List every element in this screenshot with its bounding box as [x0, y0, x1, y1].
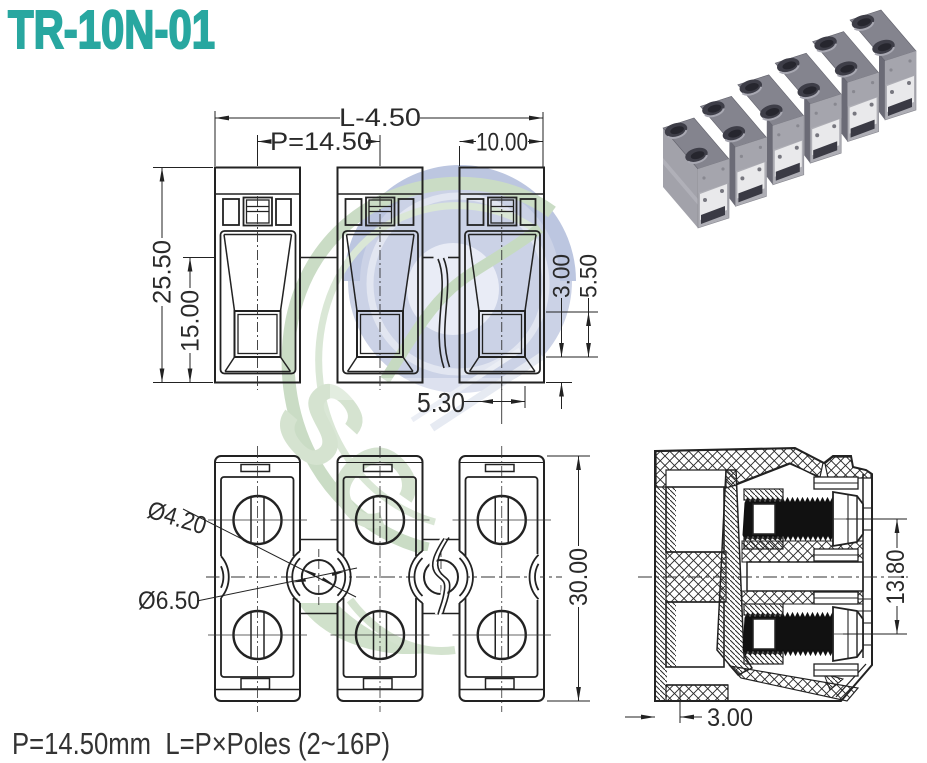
svg-text:P=14.50: P=14.50: [270, 128, 372, 156]
svg-text:5.30: 5.30: [417, 387, 465, 418]
svg-text:10.00: 10.00: [476, 129, 528, 157]
svg-text:3.00: 3.00: [549, 254, 576, 298]
svg-text:TR-10N-01: TR-10N-01: [8, 0, 215, 60]
svg-text:3.00: 3.00: [707, 704, 753, 732]
svg-text:13.80: 13.80: [882, 550, 910, 605]
svg-text:25.50: 25.50: [149, 240, 177, 304]
svg-text:5.50: 5.50: [576, 254, 603, 298]
svg-text:Ø6.50: Ø6.50: [138, 587, 200, 615]
svg-text:P=14.50mm L=P×Poles (2~16P): P=14.50mm L=P×Poles (2~16P): [12, 726, 390, 761]
svg-text:15.00: 15.00: [177, 290, 205, 352]
svg-text:30.00: 30.00: [565, 548, 593, 606]
